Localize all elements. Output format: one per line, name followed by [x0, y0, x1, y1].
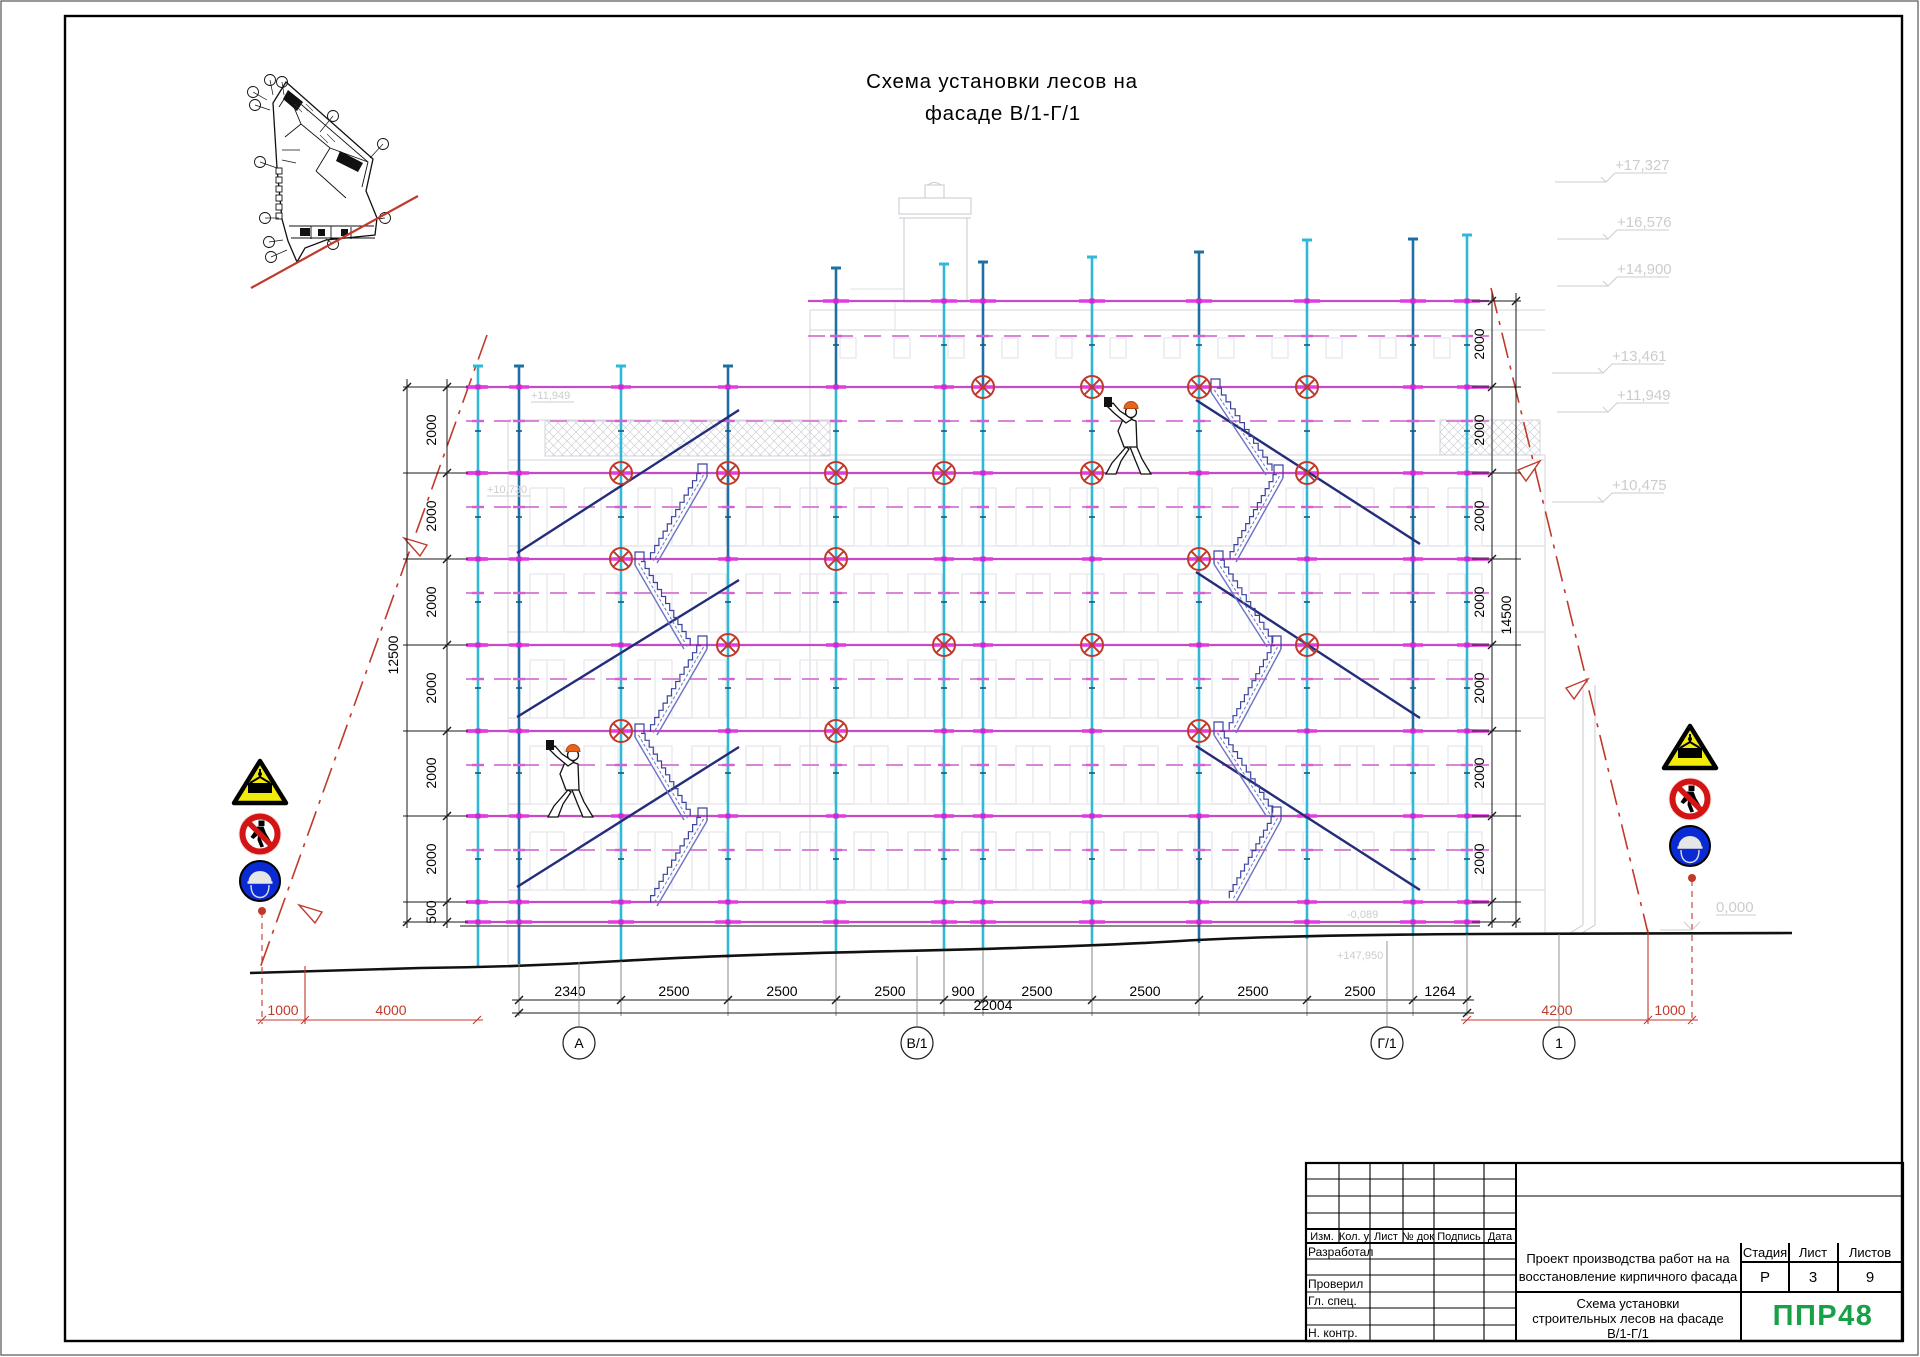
- svg-text:2000: 2000: [1471, 414, 1487, 445]
- svg-text:ППР48: ППР48: [1773, 1300, 1874, 1332]
- svg-text:А: А: [574, 1035, 584, 1051]
- svg-text:1000: 1000: [1654, 1002, 1685, 1018]
- svg-text:Подпись: Подпись: [1437, 1231, 1481, 1243]
- svg-text:Изм.: Изм.: [1310, 1231, 1334, 1243]
- svg-text:2500: 2500: [1237, 983, 1268, 999]
- svg-text:Разработал: Разработал: [1308, 1245, 1373, 1259]
- svg-text:2000: 2000: [1471, 328, 1487, 359]
- svg-text:2000: 2000: [423, 843, 439, 874]
- svg-text:+11,949: +11,949: [531, 390, 570, 402]
- svg-text:1264: 1264: [1424, 983, 1455, 999]
- svg-text:1: 1: [1555, 1035, 1563, 1051]
- svg-text:2500: 2500: [658, 983, 689, 999]
- svg-text:№ док: № док: [1402, 1231, 1434, 1243]
- svg-text:+147,950: +147,950: [1337, 950, 1383, 962]
- svg-text:2500: 2500: [766, 983, 797, 999]
- svg-text:9: 9: [1866, 1269, 1874, 1286]
- svg-text:В/1: В/1: [906, 1035, 927, 1051]
- svg-text:восстановление кирпичного фаса: восстановление кирпичного фасада: [1519, 1269, 1738, 1284]
- svg-text:Дата: Дата: [1488, 1231, 1513, 1243]
- svg-text:Лист: Лист: [1799, 1245, 1827, 1260]
- svg-text:2500: 2500: [1344, 983, 1375, 999]
- svg-text:22004: 22004: [974, 997, 1013, 1013]
- svg-text:Г/1: Г/1: [1377, 1035, 1396, 1051]
- svg-text:строительных лесов на фасаде: строительных лесов на фасаде: [1532, 1311, 1723, 1326]
- svg-text:2000: 2000: [423, 586, 439, 617]
- svg-text:2000: 2000: [423, 500, 439, 531]
- svg-text:Листов: Листов: [1849, 1245, 1891, 1260]
- svg-text:14500: 14500: [1498, 595, 1514, 634]
- svg-text:+14,900: +14,900: [1617, 261, 1672, 278]
- svg-text:+16,576: +16,576: [1617, 214, 1672, 231]
- svg-text:2000: 2000: [423, 414, 439, 445]
- svg-text:Гл. спец.: Гл. спец.: [1308, 1294, 1357, 1308]
- svg-text:2000: 2000: [423, 757, 439, 788]
- svg-text:В/1-Г/1: В/1-Г/1: [1607, 1326, 1649, 1341]
- svg-text:+11,949: +11,949: [1617, 387, 1671, 404]
- svg-text:Стадия: Стадия: [1743, 1245, 1787, 1260]
- svg-text:2000: 2000: [423, 672, 439, 703]
- svg-text:+13,461: +13,461: [1612, 348, 1667, 365]
- svg-text:Проверил: Проверил: [1308, 1277, 1363, 1291]
- svg-text:Кол. у: Кол. у: [1339, 1231, 1370, 1243]
- svg-text:4200: 4200: [1541, 1002, 1572, 1018]
- svg-text:900: 900: [951, 983, 975, 999]
- svg-text:2000: 2000: [1471, 672, 1487, 703]
- svg-text:Лист: Лист: [1374, 1231, 1398, 1243]
- svg-text:фасаде В/1-Г/1: фасаде В/1-Г/1: [925, 102, 1081, 125]
- svg-text:Проект производства работ на н: Проект производства работ на на: [1526, 1251, 1730, 1266]
- svg-text:2000: 2000: [1471, 500, 1487, 531]
- svg-text:2500: 2500: [1021, 983, 1052, 999]
- svg-text:+10,475: +10,475: [1612, 477, 1667, 494]
- svg-text:Схема установки: Схема установки: [1577, 1296, 1680, 1311]
- svg-text:2340: 2340: [554, 983, 585, 999]
- svg-text:2000: 2000: [1471, 757, 1487, 788]
- svg-text:2500: 2500: [874, 983, 905, 999]
- svg-text:1000: 1000: [267, 1002, 298, 1018]
- svg-text:12500: 12500: [385, 635, 401, 674]
- svg-text:Н. контр.: Н. контр.: [1308, 1326, 1358, 1340]
- svg-text:Схема установки лесов на: Схема установки лесов на: [866, 70, 1138, 93]
- svg-text:500: 500: [423, 900, 439, 924]
- svg-text:2000: 2000: [1471, 843, 1487, 874]
- svg-text:3: 3: [1809, 1269, 1817, 1286]
- svg-text:+17,327: +17,327: [1615, 157, 1670, 174]
- svg-text:4000: 4000: [375, 1002, 406, 1018]
- svg-text:-0,089: -0,089: [1347, 909, 1378, 921]
- svg-text:+10,730: +10,730: [487, 484, 527, 496]
- svg-text:2500: 2500: [1129, 983, 1160, 999]
- svg-text:Р: Р: [1760, 1269, 1770, 1286]
- svg-text:0,000: 0,000: [1716, 899, 1754, 916]
- svg-text:2000: 2000: [1471, 586, 1487, 617]
